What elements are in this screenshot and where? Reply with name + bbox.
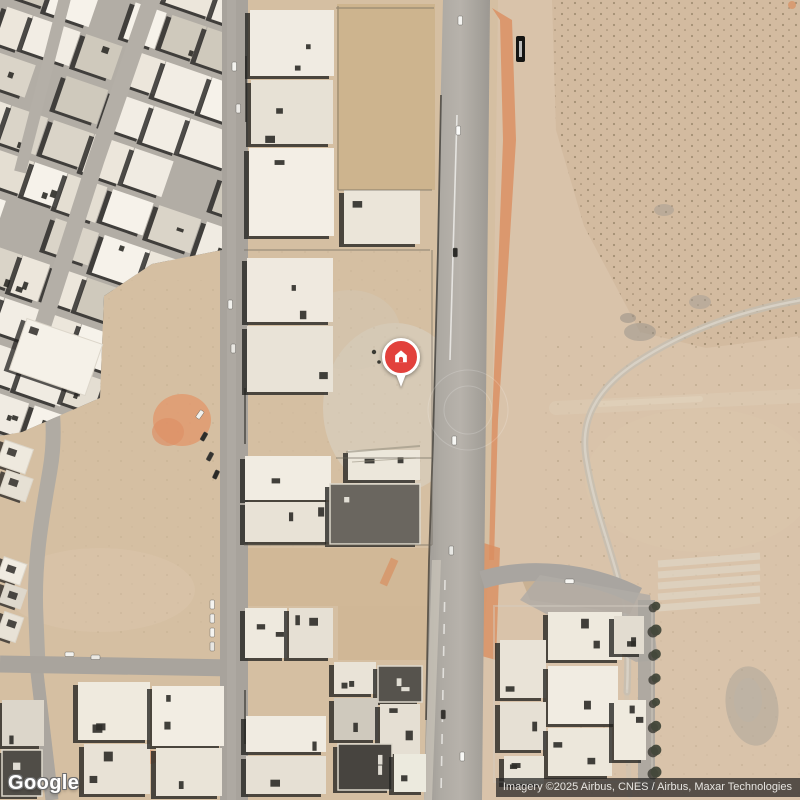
- satellite-imagery-layer: [0, 0, 800, 800]
- map-viewport[interactable]: Google Imagery ©2025 Airbus, CNES / Airb…: [0, 0, 800, 800]
- marker-tail: [396, 374, 406, 387]
- marker-circle: [382, 338, 420, 376]
- google-logo[interactable]: Google: [8, 772, 79, 795]
- property-location-marker[interactable]: [379, 338, 423, 398]
- home-icon: [392, 348, 410, 366]
- imagery-attribution: Imagery ©2025 Airbus, CNES / Airbus, Max…: [496, 778, 800, 797]
